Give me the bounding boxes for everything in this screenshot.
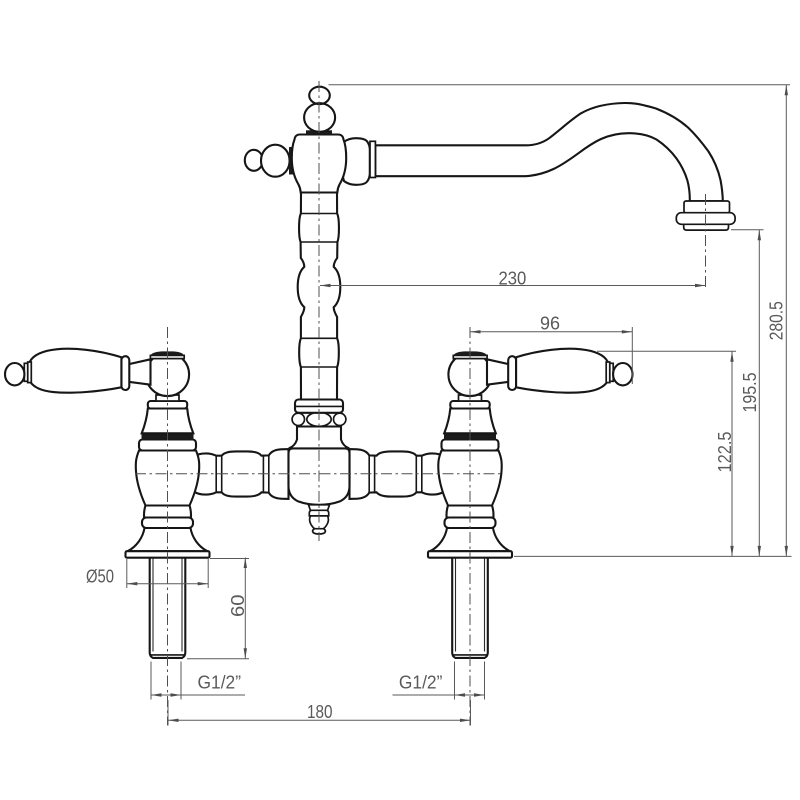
svg-text:G1/2”: G1/2” (198, 673, 242, 693)
svg-text:G1/2”: G1/2” (399, 672, 443, 692)
svg-text:195.5: 195.5 (740, 373, 760, 413)
svg-text:230: 230 (499, 268, 527, 288)
svg-text:180: 180 (307, 702, 333, 722)
svg-text:122.5: 122.5 (715, 432, 735, 473)
svg-text:280.5: 280.5 (766, 301, 786, 340)
svg-text:60: 60 (228, 595, 248, 618)
svg-text:Ø50: Ø50 (86, 567, 114, 587)
svg-text:96: 96 (540, 313, 560, 333)
